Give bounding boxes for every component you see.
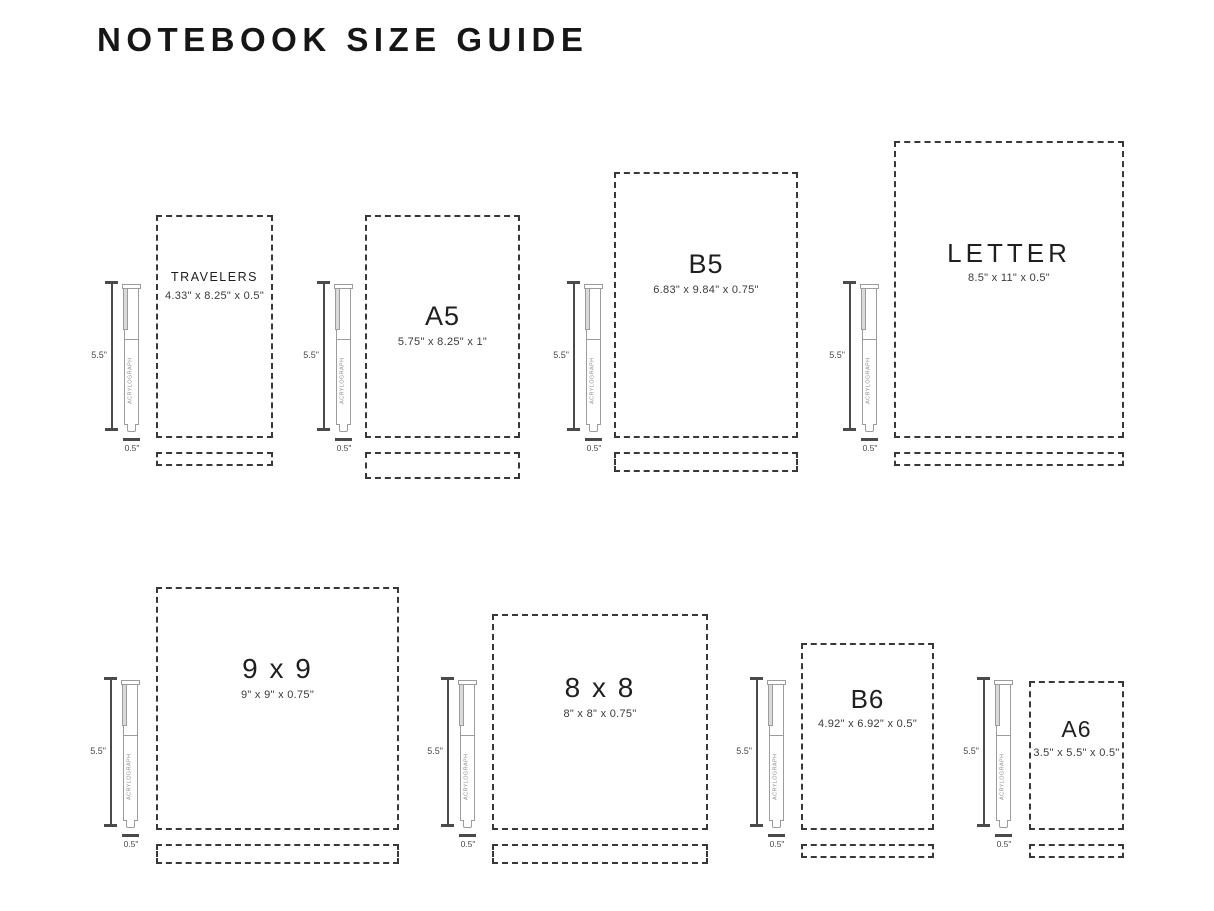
notebook-dimensions: 6.83" x 9.84" x 0.75" [616, 285, 796, 296]
pen-width-label: 0.5" [762, 840, 792, 849]
notebook-label-block: 9 x 9 9" x 9" x 0.75" [158, 655, 397, 701]
notebook-outline: 9 x 9 9" x 9" x 0.75" [156, 587, 399, 830]
notebook-spine [156, 844, 399, 864]
pen-cap-edge [997, 735, 1010, 736]
pen-clip [585, 288, 590, 330]
pen-brand-text: ACRYLOGRAPH [124, 738, 137, 816]
pen-length-label: 5.5" [823, 351, 845, 360]
measure-tick-bottom [843, 428, 856, 431]
notebook-name: B5 [616, 251, 796, 278]
measure-tick-top [317, 281, 330, 284]
measure-tick-top [977, 677, 990, 680]
pen-width-measure-line [995, 834, 1012, 837]
notebook-dimensions: 8" x 8" x 0.75" [494, 709, 706, 720]
pen-illustration: 5.5" ACRYLOGRAPH 0.5" [823, 282, 887, 454]
pen-length-label: 5.5" [957, 747, 979, 756]
pen-tip [999, 820, 1008, 828]
pen-illustration: 5.5" ACRYLOGRAPH 0.5" [730, 678, 794, 850]
pen-tip [126, 820, 135, 828]
pen-brand-text: ACRYLOGRAPH [461, 738, 474, 816]
notebook-label-block: LETTER 8.5" x 11" x 0.5" [896, 240, 1122, 284]
measure-tick-top [441, 677, 454, 680]
pen-tip [339, 424, 348, 432]
pen-clip [459, 684, 464, 726]
notebook-name: A6 [1031, 718, 1122, 741]
pen-tip [463, 820, 472, 828]
pen-width-measure-line [459, 834, 476, 837]
pen-length-label: 5.5" [84, 747, 106, 756]
pen-body: ACRYLOGRAPH [460, 680, 475, 821]
notebook-spine [894, 452, 1124, 466]
pen-body: ACRYLOGRAPH [123, 680, 138, 821]
pen-illustration: 5.5" ACRYLOGRAPH 0.5" [547, 282, 611, 454]
pen-brand-text: ACRYLOGRAPH [770, 738, 783, 816]
pen-cap-edge [125, 339, 138, 340]
notebook-size-guide: NOTEBOOK SIZE GUIDE 5.5" ACRYLOGRAPH 0.5… [0, 0, 1214, 911]
notebook-outline: B6 4.92" x 6.92" x 0.5" [801, 643, 934, 830]
notebook-label-block: TRAVELERS 4.33" x 8.25" x 0.5" [158, 271, 271, 302]
pen-body: ACRYLOGRAPH [586, 284, 601, 425]
measure-tick-bottom [317, 428, 330, 431]
measure-tick-top [104, 677, 117, 680]
pen-brand-text: ACRYLOGRAPH [863, 342, 876, 420]
pen-width-label: 0.5" [989, 840, 1019, 849]
pen-length-label: 5.5" [85, 351, 107, 360]
pen-cap-edge [124, 735, 137, 736]
pen-tip [127, 424, 136, 432]
notebook-name: A5 [367, 303, 518, 330]
notebook-name: B6 [803, 686, 932, 712]
pen-length-measure-line [447, 678, 449, 826]
pen-brand-text: ACRYLOGRAPH [125, 342, 138, 420]
page-title: NOTEBOOK SIZE GUIDE [97, 21, 588, 59]
measure-tick-bottom [567, 428, 580, 431]
notebook-outline: 8 x 8 8" x 8" x 0.75" [492, 614, 708, 830]
notebook-spine [1029, 844, 1124, 858]
pen-length-measure-line [111, 282, 113, 430]
notebook-dimensions: 4.33" x 8.25" x 0.5" [158, 291, 271, 302]
pen-cap-edge [587, 339, 600, 340]
measure-tick-bottom [750, 824, 763, 827]
pen-clip [995, 684, 1000, 726]
notebook-label-block: B6 4.92" x 6.92" x 0.5" [803, 686, 932, 730]
pen-length-measure-line [983, 678, 985, 826]
pen-width-measure-line [585, 438, 602, 441]
notebook-label-block: A6 3.5" x 5.5" x 0.5" [1031, 718, 1122, 759]
pen-cap-edge [337, 339, 350, 340]
notebook-name: LETTER [896, 240, 1122, 266]
notebook-label-block: 8 x 8 8" x 8" x 0.75" [494, 674, 706, 720]
pen-length-measure-line [323, 282, 325, 430]
pen-cap-edge [461, 735, 474, 736]
pen-body: ACRYLOGRAPH [769, 680, 784, 821]
pen-width-measure-line [122, 834, 139, 837]
notebook-dimensions: 8.5" x 11" x 0.5" [896, 273, 1122, 284]
pen-clip [335, 288, 340, 330]
measure-tick-bottom [105, 428, 118, 431]
pen-length-label: 5.5" [547, 351, 569, 360]
pen-illustration: 5.5" ACRYLOGRAPH 0.5" [957, 678, 1021, 850]
pen-clip [861, 288, 866, 330]
notebook-spine [492, 844, 708, 864]
pen-tip [865, 424, 874, 432]
pen-clip [123, 288, 128, 330]
measure-tick-top [567, 281, 580, 284]
pen-width-label: 0.5" [453, 840, 483, 849]
pen-body: ACRYLOGRAPH [996, 680, 1011, 821]
pen-brand-text: ACRYLOGRAPH [587, 342, 600, 420]
measure-tick-top [750, 677, 763, 680]
pen-brand-text: ACRYLOGRAPH [997, 738, 1010, 816]
pen-length-label: 5.5" [421, 747, 443, 756]
pen-clip [122, 684, 127, 726]
notebook-outline: A6 3.5" x 5.5" x 0.5" [1029, 681, 1124, 830]
pen-width-label: 0.5" [855, 444, 885, 453]
pen-length-label: 5.5" [730, 747, 752, 756]
notebook-spine [801, 844, 934, 858]
pen-length-measure-line [573, 282, 575, 430]
pen-length-measure-line [110, 678, 112, 826]
pen-illustration: 5.5" ACRYLOGRAPH 0.5" [421, 678, 485, 850]
pen-width-measure-line [123, 438, 140, 441]
notebook-label-block: A5 5.75" x 8.25" x 1" [367, 303, 518, 348]
pen-width-measure-line [768, 834, 785, 837]
notebook-dimensions: 3.5" x 5.5" x 0.5" [1031, 748, 1122, 759]
pen-brand-text: ACRYLOGRAPH [337, 342, 350, 420]
pen-body: ACRYLOGRAPH [124, 284, 139, 425]
notebook-outline: TRAVELERS 4.33" x 8.25" x 0.5" [156, 215, 273, 438]
pen-tip [772, 820, 781, 828]
notebook-dimensions: 4.92" x 6.92" x 0.5" [803, 719, 932, 730]
pen-body: ACRYLOGRAPH [862, 284, 877, 425]
notebook-spine [156, 452, 273, 466]
notebook-dimensions: 9" x 9" x 0.75" [158, 690, 397, 701]
pen-width-label: 0.5" [116, 840, 146, 849]
notebook-name: TRAVELERS [158, 271, 271, 284]
pen-body: ACRYLOGRAPH [336, 284, 351, 425]
measure-tick-bottom [977, 824, 990, 827]
pen-width-label: 0.5" [579, 444, 609, 453]
notebook-outline: LETTER 8.5" x 11" x 0.5" [894, 141, 1124, 438]
notebook-label-block: B5 6.83" x 9.84" x 0.75" [616, 251, 796, 296]
notebook-spine [365, 452, 520, 479]
measure-tick-bottom [104, 824, 117, 827]
measure-tick-bottom [441, 824, 454, 827]
pen-cap-edge [863, 339, 876, 340]
notebook-spine [614, 452, 798, 472]
pen-width-measure-line [335, 438, 352, 441]
notebook-name: 8 x 8 [494, 674, 706, 702]
pen-tip [589, 424, 598, 432]
pen-clip [768, 684, 773, 726]
notebook-dimensions: 5.75" x 8.25" x 1" [367, 337, 518, 348]
pen-illustration: 5.5" ACRYLOGRAPH 0.5" [85, 282, 149, 454]
pen-width-label: 0.5" [329, 444, 359, 453]
pen-width-measure-line [861, 438, 878, 441]
notebook-outline: A5 5.75" x 8.25" x 1" [365, 215, 520, 438]
notebook-outline: B5 6.83" x 9.84" x 0.75" [614, 172, 798, 438]
pen-length-measure-line [849, 282, 851, 430]
measure-tick-top [105, 281, 118, 284]
pen-illustration: 5.5" ACRYLOGRAPH 0.5" [84, 678, 148, 850]
pen-cap-edge [770, 735, 783, 736]
pen-width-label: 0.5" [117, 444, 147, 453]
pen-length-label: 5.5" [297, 351, 319, 360]
notebook-name: 9 x 9 [158, 655, 397, 683]
measure-tick-top [843, 281, 856, 284]
pen-illustration: 5.5" ACRYLOGRAPH 0.5" [297, 282, 361, 454]
pen-length-measure-line [756, 678, 758, 826]
